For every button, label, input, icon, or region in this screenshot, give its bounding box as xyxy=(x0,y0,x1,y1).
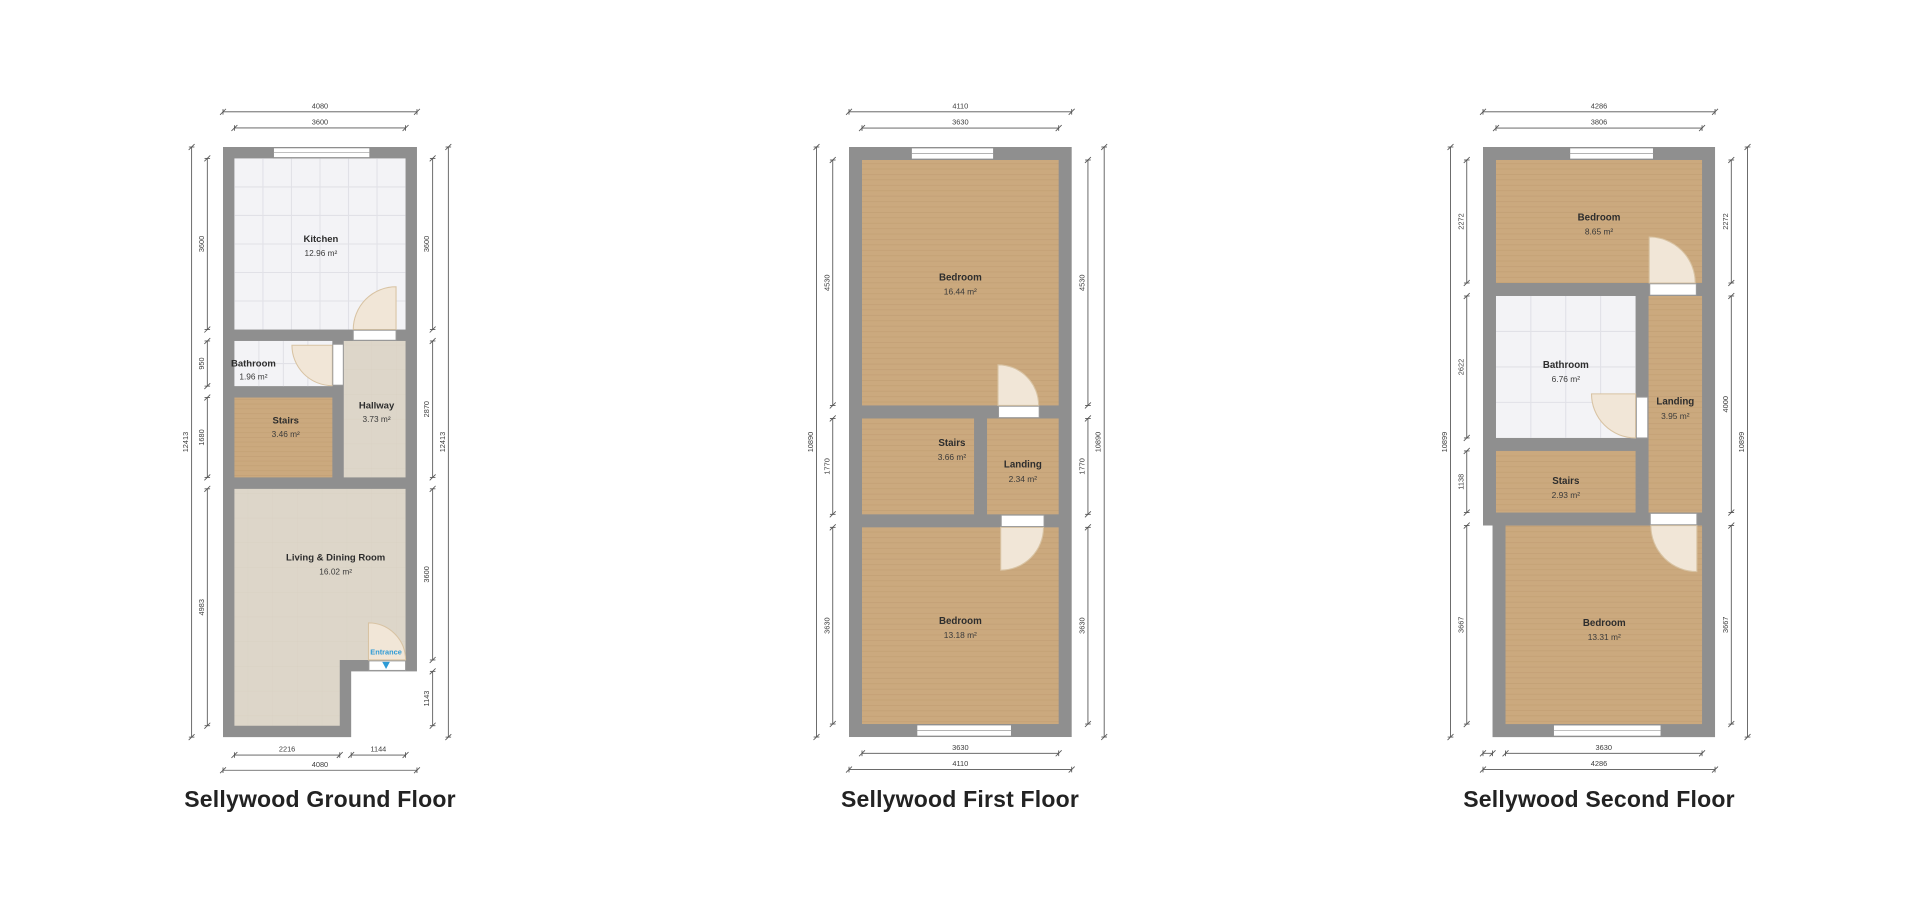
svg-text:12413: 12413 xyxy=(438,432,447,452)
floor-title-second: Sellywood Second Floor xyxy=(1389,786,1809,813)
svg-text:4530: 4530 xyxy=(1077,274,1086,290)
dimension-left_segments.3: 3667 xyxy=(1456,523,1469,727)
dimension-right_overall: 10890 xyxy=(1094,144,1107,740)
svg-text:3630: 3630 xyxy=(952,743,968,752)
room-area-stairs: 3.66 m² xyxy=(938,452,967,462)
dimension-left_overall: 12413 xyxy=(181,144,194,740)
room-area-bathroom: 6.76 m² xyxy=(1552,374,1581,384)
room-label-bathroom: Bathroom xyxy=(231,359,276,370)
first-stairs-floor xyxy=(862,418,974,514)
room-label-stairs: Stairs xyxy=(938,438,966,449)
dimension-top_inner.0: 3630 xyxy=(859,118,1062,131)
ground-kitchen-door-leaf xyxy=(353,330,396,340)
room-area-stairs: 3.46 m² xyxy=(272,429,300,439)
svg-text:1144: 1144 xyxy=(370,745,386,754)
dimension-top_overall: 4110 xyxy=(846,101,1075,114)
svg-text:3630: 3630 xyxy=(952,118,968,127)
dimension-right_overall: 10899 xyxy=(1737,144,1750,740)
first-top-window xyxy=(911,148,993,159)
dimension-right_segments.0: 4530 xyxy=(1077,157,1090,408)
room-area-bedroom2: 13.18 m² xyxy=(944,630,977,640)
floor-title-ground: Sellywood Ground Floor xyxy=(110,786,530,813)
dimension-bottom_overall: 4110 xyxy=(846,759,1075,772)
svg-text:10890: 10890 xyxy=(806,432,815,453)
first-bottom-window xyxy=(917,725,1012,736)
svg-text:4530: 4530 xyxy=(822,274,831,290)
svg-text:3600: 3600 xyxy=(312,118,328,127)
dimension-bottom_overall: 4080 xyxy=(220,760,420,773)
entrance-label: Entrance xyxy=(370,648,402,657)
dimension-bottom_segments.0: 3630 xyxy=(859,743,1062,756)
room-area-landing: 3.95 m² xyxy=(1661,411,1690,421)
dimension-bottom_overall: 4286 xyxy=(1480,759,1718,772)
second-bathroom-door-leaf xyxy=(1636,397,1647,438)
dimension-right_segments.1: 4000 xyxy=(1721,293,1734,516)
room-label-hallway: Hallway xyxy=(359,400,395,411)
room-area-living: 16.02 m² xyxy=(319,566,352,576)
svg-text:2870: 2870 xyxy=(422,401,431,417)
dimension-right_segments.0: 3600 xyxy=(422,155,435,332)
dimension-top_inner.0: 3806 xyxy=(1493,118,1705,131)
room-label-stairs: Stairs xyxy=(273,416,299,427)
dimension-bottom_tiny xyxy=(1480,750,1495,756)
svg-text:2272: 2272 xyxy=(1721,213,1730,229)
room-area-stairs: 2.93 m² xyxy=(1552,490,1581,500)
room-label-landing: Landing xyxy=(1004,460,1042,471)
dimension-right_segments.0: 2272 xyxy=(1721,157,1734,286)
dimension-left_segments.2: 1138 xyxy=(1456,448,1469,516)
room-area-kitchen: 12.96 m² xyxy=(305,248,338,258)
svg-text:2622: 2622 xyxy=(1456,359,1465,375)
ground-living-floor xyxy=(234,489,405,726)
first-bedroom2-door-leaf xyxy=(1001,515,1044,526)
dimension-bottom_segments.1: 1144 xyxy=(348,745,408,758)
dimension-top_inner.0: 3600 xyxy=(231,118,408,131)
svg-text:10899: 10899 xyxy=(1737,432,1746,453)
dimension-bottom_segments.0: 2216 xyxy=(231,745,342,758)
second-bottom-window xyxy=(1553,725,1661,736)
room-label-kitchen: Kitchen xyxy=(304,234,339,245)
svg-text:4286: 4286 xyxy=(1591,759,1607,768)
dimension-right_segments.2: 3600 xyxy=(422,486,435,663)
room-area-bathroom: 1.96 m² xyxy=(239,371,267,381)
room-label-bedroom1: Bedroom xyxy=(1578,213,1621,224)
dimension-left_segments.2: 1680 xyxy=(197,395,210,481)
room-area-landing: 2.34 m² xyxy=(1009,474,1038,484)
dimension-right_segments.1: 2870 xyxy=(422,338,435,480)
svg-text:4080: 4080 xyxy=(312,101,328,110)
svg-text:1770: 1770 xyxy=(1077,458,1086,474)
dimension-top_overall: 4286 xyxy=(1480,101,1718,114)
ground-bathroom-door-leaf xyxy=(333,344,343,385)
dimension-left_segments.3: 4983 xyxy=(197,486,210,729)
svg-text:3600: 3600 xyxy=(422,236,431,252)
floorplan-first: Bedroom 16.44 m² Stairs 3.66 m² Landing … xyxy=(806,101,1107,772)
room-label-stairs: Stairs xyxy=(1552,476,1580,487)
svg-text:4286: 4286 xyxy=(1591,101,1607,110)
svg-text:1138: 1138 xyxy=(1456,474,1465,490)
svg-text:10899: 10899 xyxy=(1440,432,1449,453)
room-label-bedroom2: Bedroom xyxy=(939,616,982,627)
dimension-right_overall: 12413 xyxy=(438,144,451,740)
dimension-right_segments.3: 1143 xyxy=(422,668,435,728)
floorplans-canvas: Entrance Kitchen 12.96 m² Bathroom 1.96 … xyxy=(0,0,1920,906)
dimension-left_segments.0: 3600 xyxy=(197,155,210,332)
room-area-bedroom1: 16.44 m² xyxy=(944,286,977,296)
svg-text:3806: 3806 xyxy=(1591,118,1607,127)
room-label-living: Living & Dining Room xyxy=(286,553,385,564)
floorplan-ground: Entrance Kitchen 12.96 m² Bathroom 1.96 … xyxy=(181,101,451,773)
svg-text:3630: 3630 xyxy=(822,617,831,633)
dimension-right_segments.2: 3667 xyxy=(1721,523,1734,727)
svg-text:3630: 3630 xyxy=(1596,743,1612,752)
dimension-left_segments.1: 950 xyxy=(197,338,210,389)
dimension-right_segments.1: 1770 xyxy=(1077,415,1090,517)
room-label-bedroom2: Bedroom xyxy=(1583,618,1626,629)
dimension-left_segments.0: 4530 xyxy=(822,157,835,408)
room-label-landing: Landing xyxy=(1656,397,1694,408)
dimension-top_overall: 4080 xyxy=(220,101,420,114)
second-bedroom1-door-leaf xyxy=(1650,284,1697,295)
dimension-left_overall: 10899 xyxy=(1440,144,1453,740)
second-bedroom2-door-leaf xyxy=(1650,513,1697,524)
svg-text:3600: 3600 xyxy=(422,566,431,582)
svg-text:3630: 3630 xyxy=(1077,617,1086,633)
dimension-left_overall: 10890 xyxy=(806,144,819,740)
room-label-bathroom: Bathroom xyxy=(1543,360,1589,371)
dimension-left_segments.1: 2622 xyxy=(1456,293,1469,441)
svg-text:4110: 4110 xyxy=(952,101,968,110)
dimension-left_segments.2: 3630 xyxy=(822,524,835,727)
svg-text:12413: 12413 xyxy=(181,432,190,452)
svg-text:10890: 10890 xyxy=(1094,432,1103,453)
svg-text:1143: 1143 xyxy=(422,691,431,707)
svg-text:4080: 4080 xyxy=(312,760,328,769)
svg-text:1770: 1770 xyxy=(822,458,831,474)
room-area-hallway: 3.73 m² xyxy=(362,414,390,424)
floor-title-first: Sellywood First Floor xyxy=(750,786,1170,813)
ground-top-window xyxy=(273,148,370,158)
first-bedroom1-door-leaf xyxy=(999,406,1040,417)
svg-text:4000: 4000 xyxy=(1721,396,1730,412)
dimension-right_segments.2: 3630 xyxy=(1077,524,1090,727)
room-area-bedroom1: 8.65 m² xyxy=(1585,227,1614,237)
svg-text:950: 950 xyxy=(197,357,206,369)
second-top-window xyxy=(1570,148,1654,159)
dimension-left_segments.1: 1770 xyxy=(822,415,835,517)
svg-text:3667: 3667 xyxy=(1456,617,1465,633)
svg-text:2272: 2272 xyxy=(1456,213,1465,229)
svg-text:4983: 4983 xyxy=(197,599,206,615)
dimension-left_segments.0: 2272 xyxy=(1456,157,1469,286)
dimension-bottom_segments.0: 3630 xyxy=(1503,743,1705,756)
svg-text:3600: 3600 xyxy=(197,236,206,252)
svg-text:4110: 4110 xyxy=(952,759,968,768)
room-area-bedroom2: 13.31 m² xyxy=(1588,632,1621,642)
svg-text:3667: 3667 xyxy=(1721,617,1730,633)
floorplan-second: Bedroom 8.65 m² Bathroom 6.76 m² Landing… xyxy=(1440,101,1750,772)
room-label-bedroom1: Bedroom xyxy=(939,272,982,283)
svg-text:2216: 2216 xyxy=(279,745,295,754)
svg-text:1680: 1680 xyxy=(197,429,206,445)
